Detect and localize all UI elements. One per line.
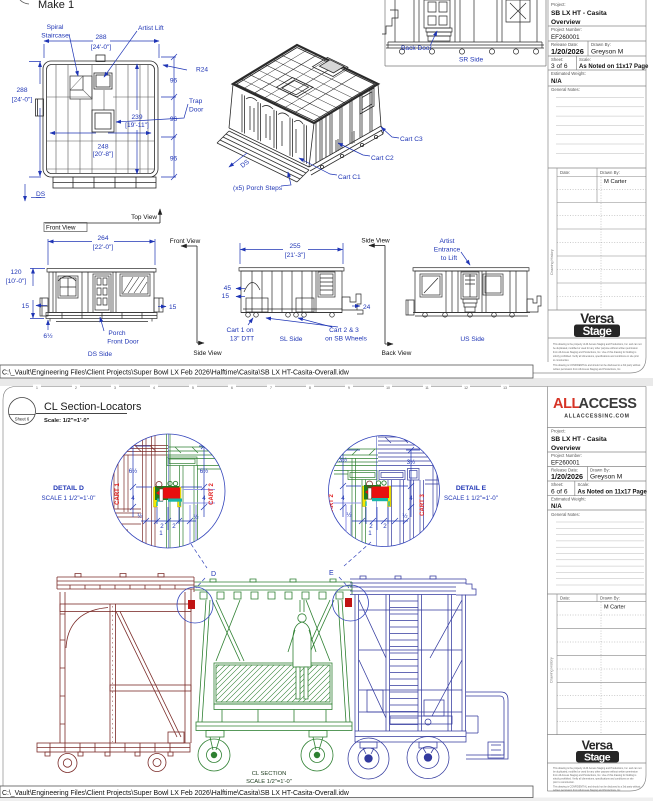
svg-text:Project:: Project: <box>551 429 566 434</box>
svg-text:1/20/2026: 1/20/2026 <box>551 47 584 56</box>
svg-text:3½: 3½ <box>339 457 348 464</box>
svg-text:Front Door: Front Door <box>107 339 139 346</box>
svg-text:Drawn By:: Drawn By: <box>590 468 610 473</box>
svg-text:Drawn By:: Drawn By: <box>600 170 620 175</box>
svg-text:This drawing is the property o: This drawing is the property of All Acce… <box>553 343 642 346</box>
svg-text:Drawing History: Drawing History <box>550 657 554 683</box>
svg-text:E: E <box>329 570 334 577</box>
svg-text:[19'-11"]: [19'-11"] <box>125 122 149 129</box>
svg-text:DS: DS <box>36 191 46 198</box>
svg-text:Cart 2 & 3: Cart 2 & 3 <box>329 327 359 334</box>
svg-text:[22'-0"]: [22'-0"] <box>93 244 114 251</box>
svg-text:Stage: Stage <box>583 326 612 338</box>
svg-text:Top View: Top View <box>131 214 157 221</box>
svg-text:288: 288 <box>95 34 106 41</box>
svg-text:(x5) Porch Steps: (x5) Porch Steps <box>233 185 283 192</box>
svg-text:Make 1: Make 1 <box>38 0 74 11</box>
svg-text:to Lift: to Lift <box>441 255 457 262</box>
svg-text:written permission from All Ac: written permission from All Access Stagi… <box>553 789 621 792</box>
svg-text:SB LX HT - Casita: SB LX HT - Casita <box>551 10 607 17</box>
svg-text:Estimated Weight:: Estimated Weight: <box>551 71 586 76</box>
svg-text:6½: 6½ <box>129 468 138 475</box>
svg-text:15: 15 <box>222 293 230 300</box>
svg-text:As Noted on 11x17 Page: As Noted on 11x17 Page <box>579 64 649 70</box>
svg-text:6½: 6½ <box>43 332 53 340</box>
svg-text:Back View: Back View <box>382 350 412 357</box>
svg-text:DETAIL D: DETAIL D <box>53 485 84 492</box>
svg-text:C:\_Vault\Engineering Files\Cl: C:\_Vault\Engineering Files\Client Proje… <box>2 370 349 377</box>
svg-text:Date:: Date: <box>560 170 570 175</box>
svg-text:8: 8 <box>309 386 311 390</box>
svg-text:US Side: US Side <box>460 336 485 343</box>
svg-text:264: 264 <box>97 235 108 242</box>
svg-text:Greyson M: Greyson M <box>591 49 623 56</box>
svg-text:Drawn By:: Drawn By: <box>591 42 611 47</box>
svg-text:96: 96 <box>170 78 178 85</box>
svg-text:CART 1: CART 1 <box>115 483 121 505</box>
svg-text:on SB Wheels: on SB Wheels <box>325 336 367 343</box>
svg-text:11: 11 <box>425 386 429 390</box>
svg-text:1: 1 <box>159 530 163 537</box>
svg-text:4: 4 <box>131 495 135 502</box>
svg-text:2: 2 <box>172 523 176 530</box>
svg-text:96: 96 <box>170 156 178 163</box>
svg-text:written permission from All Ac: written permission from All Access Stagi… <box>553 368 621 371</box>
svg-text:[24'-0"]: [24'-0"] <box>12 97 33 104</box>
svg-text:CART 2: CART 2 <box>209 483 215 505</box>
svg-text:Overview: Overview <box>551 445 581 452</box>
svg-text:15: 15 <box>169 304 177 311</box>
svg-text:Trap: Trap <box>189 98 203 105</box>
svg-text:4: 4 <box>409 495 413 502</box>
svg-text:6½: 6½ <box>200 468 209 475</box>
svg-text:EF260001: EF260001 <box>551 460 580 467</box>
svg-text:6: 6 <box>231 386 233 390</box>
svg-text:Porch: Porch <box>108 330 126 337</box>
svg-text:4: 4 <box>341 495 345 502</box>
svg-text:10: 10 <box>386 386 390 390</box>
svg-text:45: 45 <box>224 285 232 292</box>
svg-text:Project Number:: Project Number: <box>551 27 582 32</box>
svg-text:[24'-0"]: [24'-0"] <box>91 44 112 51</box>
svg-text:Project Number:: Project Number: <box>551 453 582 458</box>
svg-text:15: 15 <box>22 303 30 310</box>
svg-text:4: 4 <box>153 386 155 390</box>
svg-text:M Carter: M Carter <box>604 179 627 185</box>
svg-text:Versa: Versa <box>582 739 614 753</box>
svg-text:1: 1 <box>36 386 38 390</box>
svg-text:7: 7 <box>270 386 272 390</box>
svg-text:As Noted on 11x17 Page: As Noted on 11x17 Page <box>578 490 648 496</box>
svg-text:Cart C3: Cart C3 <box>400 136 423 143</box>
svg-text:Drawing History: Drawing History <box>550 249 554 275</box>
svg-text:1/20/2026: 1/20/2026 <box>551 472 583 481</box>
svg-text:Spiral: Spiral <box>47 24 64 31</box>
svg-text:This drawing is CONFIDENTIAL a: This drawing is CONFIDENTIAL and should … <box>553 364 641 367</box>
svg-text:5: 5 <box>192 386 194 390</box>
svg-text:C:\_Vault\Engineering Files\Cl: C:\_Vault\Engineering Files\Client Proje… <box>2 790 349 797</box>
svg-text:CART 3: CART 3 <box>420 494 426 516</box>
svg-text:Side View: Side View <box>361 238 390 245</box>
svg-text:12: 12 <box>464 386 468 390</box>
svg-text:prior to construction.: prior to construction. <box>553 781 575 784</box>
svg-text:Artist Lift: Artist Lift <box>138 25 164 32</box>
svg-text:ALLACCESSINC.COM: ALLACCESSINC.COM <box>564 414 629 420</box>
svg-text:Sheet:: Sheet: <box>551 482 563 487</box>
svg-text:Estimated Weight:: Estimated Weight: <box>551 497 586 502</box>
svg-text:2: 2 <box>75 386 77 390</box>
svg-text:CL Section-Locators: CL Section-Locators <box>44 401 142 413</box>
svg-text:½: ½ <box>346 512 351 519</box>
svg-text:4: 4 <box>202 495 206 502</box>
svg-text:288: 288 <box>16 87 27 94</box>
svg-text:from All Access Staging and Pr: from All Access Staging and Productions,… <box>553 351 637 354</box>
svg-text:Front View: Front View <box>170 238 201 245</box>
svg-text:SCALE 1/2"=1'-0": SCALE 1/2"=1'-0" <box>246 779 292 785</box>
svg-text:6 of 6: 6 of 6 <box>551 489 568 496</box>
svg-text:½: ½ <box>402 513 407 520</box>
svg-text:13" DTT: 13" DTT <box>230 336 254 343</box>
svg-text:Date:: Date: <box>560 596 570 601</box>
svg-text:Cart C1: Cart C1 <box>338 174 361 181</box>
svg-text:Back Door: Back Door <box>401 45 433 52</box>
svg-text:2: 2 <box>369 523 373 530</box>
svg-text:DETAIL E: DETAIL E <box>456 485 487 492</box>
svg-text:Versa: Versa <box>580 311 615 326</box>
svg-text:½: ½ <box>137 513 142 520</box>
svg-text:N/A: N/A <box>551 503 562 510</box>
svg-text:239: 239 <box>131 114 142 121</box>
svg-text:ACCESS: ACCESS <box>579 396 638 412</box>
svg-text:Front View: Front View <box>46 225 76 232</box>
svg-text:Drawn By:: Drawn By: <box>600 596 620 601</box>
svg-text:3: 3 <box>114 386 116 390</box>
svg-text:SL Side: SL Side <box>280 336 303 343</box>
svg-text:[21'-3"]: [21'-3"] <box>285 252 306 259</box>
svg-text:Door: Door <box>189 107 204 114</box>
svg-text:D: D <box>211 571 216 578</box>
svg-text:Stage: Stage <box>584 752 611 764</box>
svg-text:Project:: Project: <box>551 2 566 7</box>
svg-text:DS Side: DS Side <box>88 351 113 358</box>
svg-text:CL SECTION: CL SECTION <box>252 771 287 777</box>
svg-text:Sheet:: Sheet: <box>551 57 563 62</box>
svg-text:be duplicated, modified or use: be duplicated, modified or used for any … <box>553 347 638 350</box>
svg-text:ALL: ALL <box>553 396 581 412</box>
svg-text:Scale:: Scale: <box>579 57 591 62</box>
svg-text:Greyson M: Greyson M <box>590 474 622 481</box>
svg-text:Staircase: Staircase <box>41 33 69 40</box>
svg-text:3 of 6: 3 of 6 <box>551 63 568 70</box>
svg-text:2: 2 <box>383 523 387 530</box>
svg-text:½: ½ <box>193 514 198 521</box>
svg-text:24: 24 <box>363 304 371 311</box>
svg-text:Overview: Overview <box>551 19 581 26</box>
svg-text:Side View: Side View <box>193 350 222 357</box>
svg-text:3½: 3½ <box>407 459 416 466</box>
svg-text:Scale:: Scale: <box>578 482 590 487</box>
svg-text:Sheet 6: Sheet 6 <box>15 417 30 422</box>
svg-text:Artist: Artist <box>439 238 454 245</box>
svg-text:N/A: N/A <box>551 78 562 85</box>
svg-text:96: 96 <box>170 116 178 123</box>
svg-text:Entrance: Entrance <box>434 247 461 254</box>
svg-text:strictly prohibited. Verify al: strictly prohibited. Verify all dimensio… <box>553 355 639 358</box>
svg-text:Cart C2: Cart C2 <box>371 155 394 162</box>
svg-text:248: 248 <box>97 144 108 151</box>
svg-text:General Notes:: General Notes: <box>551 87 580 92</box>
svg-text:13: 13 <box>503 386 507 390</box>
svg-text:Cart 1 on: Cart 1 on <box>226 327 253 334</box>
svg-text:SCALE 1 1/2"=1'-0": SCALE 1 1/2"=1'-0" <box>42 495 96 502</box>
svg-text:General Notes:: General Notes: <box>551 512 580 517</box>
svg-text:M Carter: M Carter <box>604 605 626 611</box>
svg-text:120: 120 <box>10 269 21 276</box>
svg-text:SCALE 1 1/2"=1'-0": SCALE 1 1/2"=1'-0" <box>444 495 498 502</box>
svg-text:2: 2 <box>160 523 164 530</box>
svg-text:9: 9 <box>348 386 350 390</box>
svg-text:[20'-8"]: [20'-8"] <box>93 151 114 158</box>
svg-text:SB LX HT - Casita: SB LX HT - Casita <box>551 436 607 443</box>
svg-text:SR Side: SR Side <box>459 57 484 64</box>
svg-text:to construction.: to construction. <box>553 359 570 362</box>
svg-text:Scale: 1/2"=1'-0": Scale: 1/2"=1'-0" <box>44 418 90 424</box>
svg-text:255: 255 <box>289 243 300 250</box>
svg-text:[10'-0"]: [10'-0"] <box>6 278 27 285</box>
svg-text:1: 1 <box>368 530 372 537</box>
svg-text:R24: R24 <box>196 67 208 74</box>
svg-text:EF260001: EF260001 <box>551 34 580 41</box>
